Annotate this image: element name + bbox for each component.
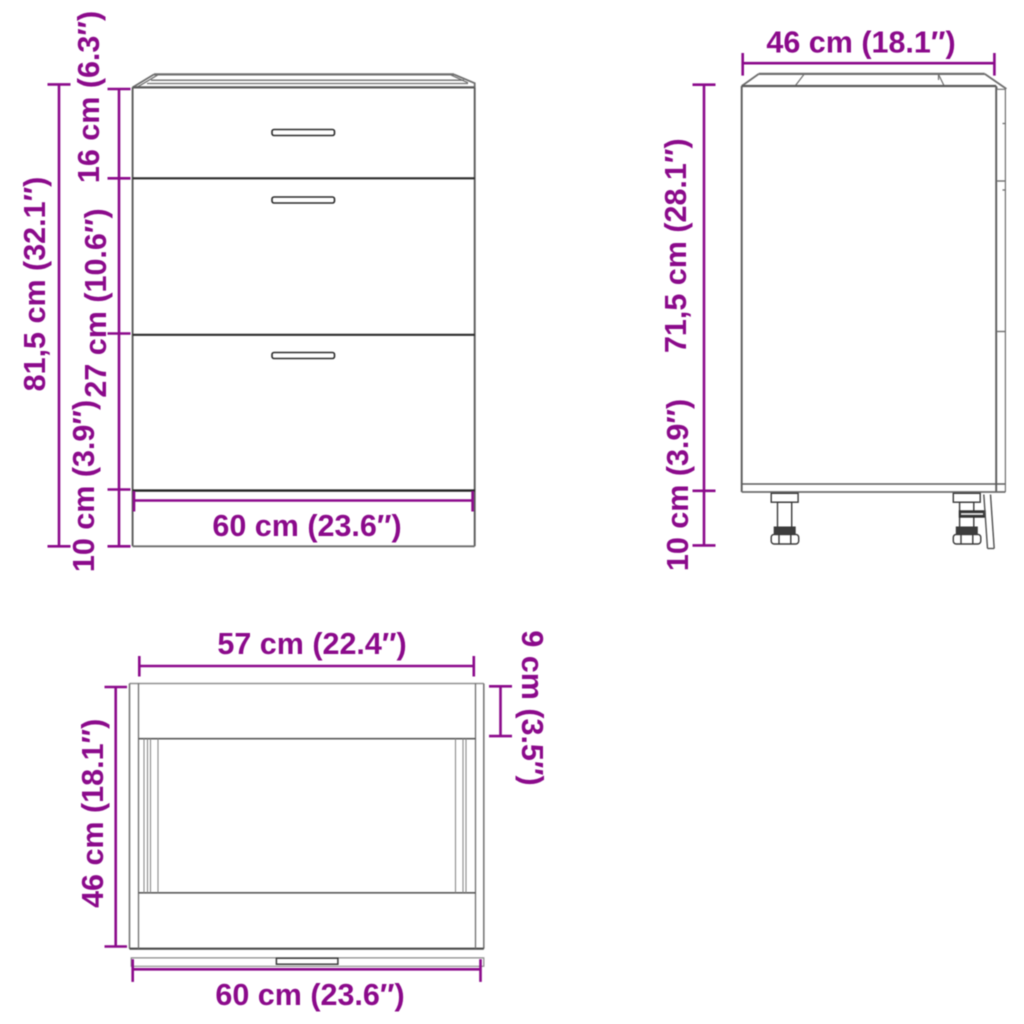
svg-text:60 cm (23.6″): 60 cm (23.6″): [215, 978, 404, 1012]
svg-text:10 cm (3.9″): 10 cm (3.9″): [67, 400, 101, 572]
svg-text:81,5 cm (32.1″): 81,5 cm (32.1″): [18, 177, 52, 392]
svg-text:46 cm (18.1″): 46 cm (18.1″): [76, 719, 110, 908]
svg-text:10 cm (3.9″): 10 cm (3.9″): [661, 399, 695, 571]
svg-text:9 cm (3.5″): 9 cm (3.5″): [515, 630, 549, 785]
svg-text:71,5 cm (28.1″): 71,5 cm (28.1″): [659, 138, 693, 353]
svg-text:60 cm (23.6″): 60 cm (23.6″): [212, 509, 401, 543]
svg-text:46 cm (18.1″): 46 cm (18.1″): [766, 26, 955, 60]
svg-text:27 cm (10.6″): 27 cm (10.6″): [79, 208, 113, 397]
svg-text:57 cm (22.4″): 57 cm (22.4″): [217, 627, 406, 661]
svg-text:16 cm (6.3″): 16 cm (6.3″): [72, 11, 106, 183]
